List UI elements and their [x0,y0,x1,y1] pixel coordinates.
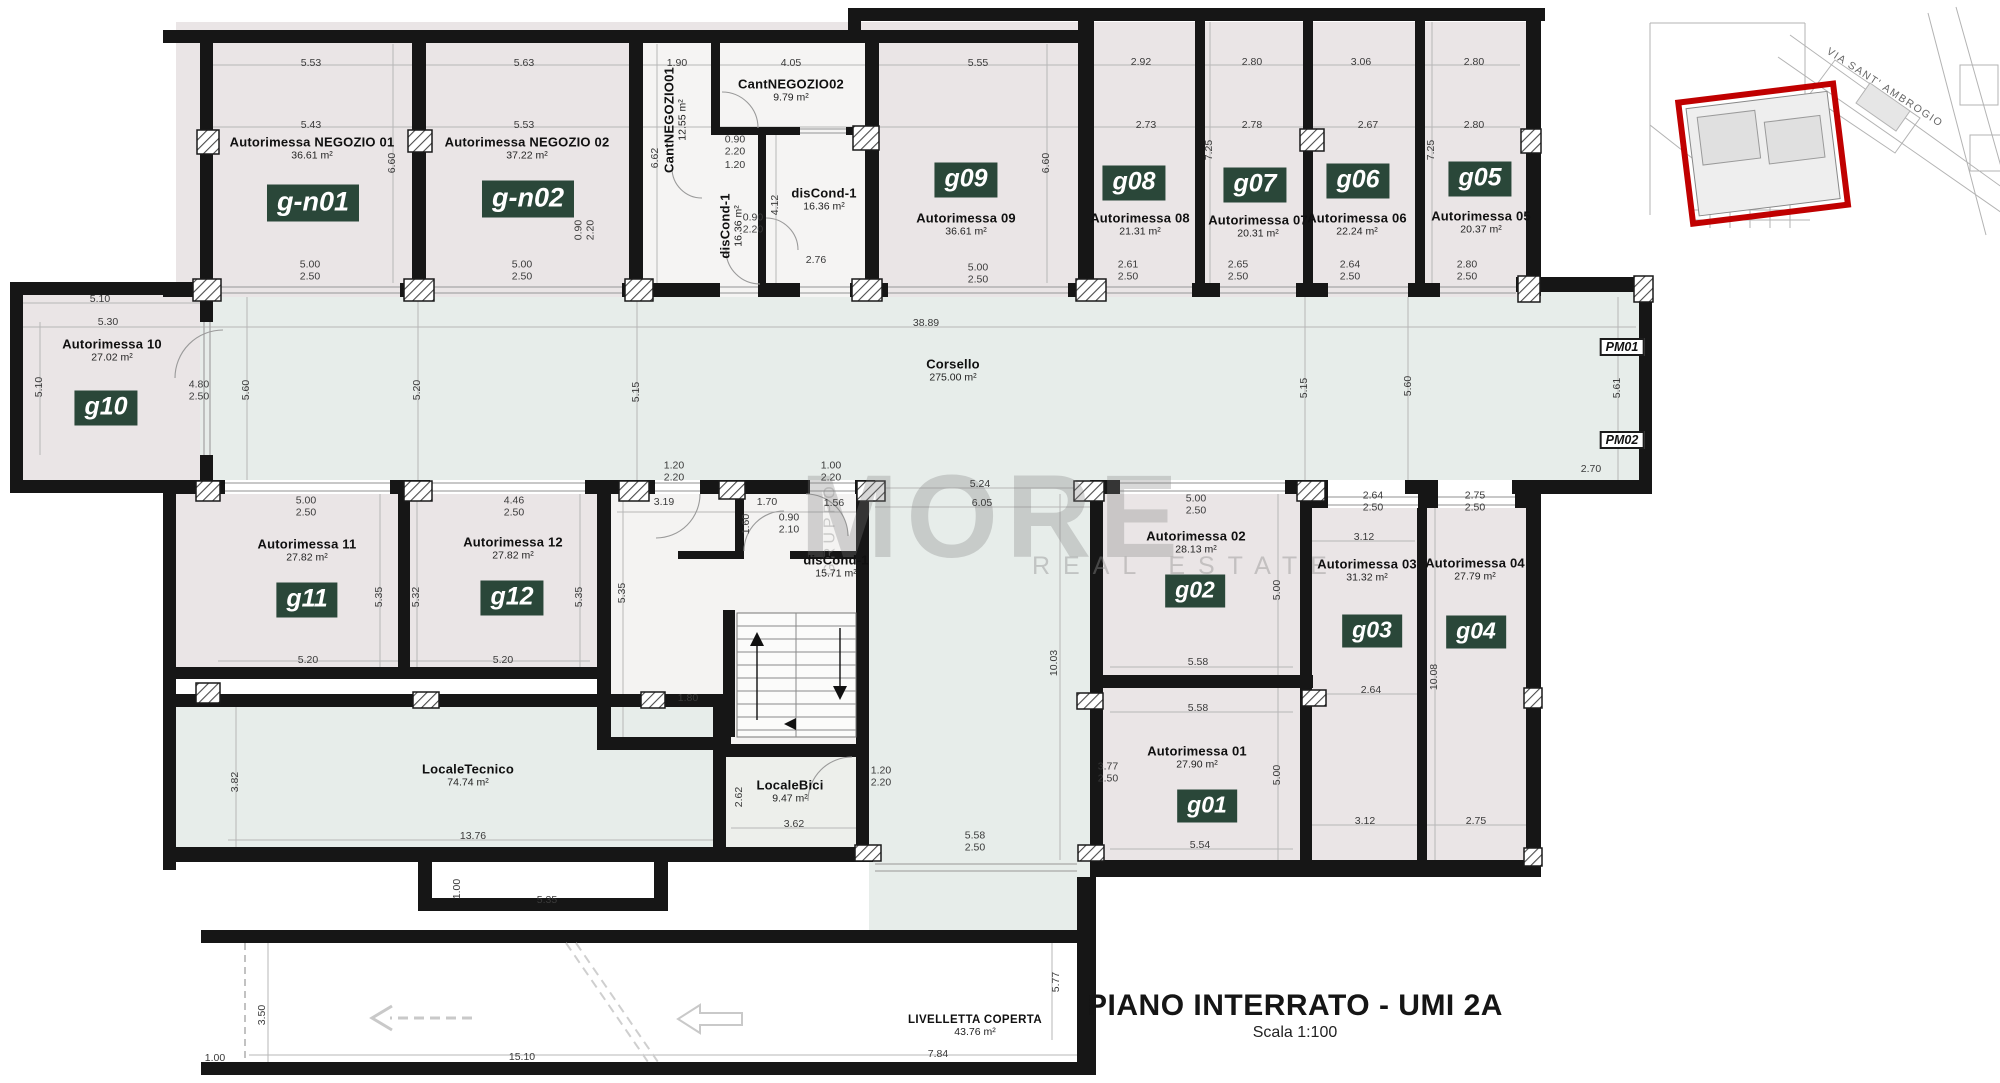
dimension-label: 5.77 [1051,972,1063,992]
dimension-label: 2.78 [1242,120,1262,132]
room-name: Autorimessa 03 [1317,557,1417,572]
room-label: Autorimessa 0622.24 m² [1307,211,1407,238]
unit-badge: g04 [1446,616,1506,649]
room-area: 12.55 m² [677,67,689,173]
room-label: LocaleTecnico74.74 m² [422,762,514,789]
dimension-label: 5.43 [301,120,321,132]
dimension-label: 1.20 2.20 [871,765,891,789]
room-name: LocaleBici [756,778,823,793]
room-area: 27.82 m² [258,552,357,564]
dimension-label: 0.90 2.10 [779,512,799,536]
room-label: Autorimessa 0427.79 m² [1425,556,1525,583]
room-label: disCond-115.71 m² [803,553,868,580]
room-area: 27.82 m² [463,550,563,562]
dimension-label: 5.00 [1272,580,1284,600]
unit-badge: g07 [1223,168,1286,203]
room-area: 74.74 m² [422,777,514,789]
unit-badge: g11 [276,583,337,618]
dimension-label: 2.92 [1131,57,1151,69]
dimension-label: 1.60 [741,514,753,534]
dimension-label: 5.53 [301,58,321,70]
dimension-label: 5.00 [1272,765,1284,785]
dimension-label: 5.32 [411,587,423,607]
dimension-label: 6.62 [650,148,662,168]
room-name: disCond-1 [718,193,733,258]
room-name: LocaleTecnico [422,762,514,777]
dimension-label: 5.24 [970,479,990,491]
dimension-label: 2.70 [1581,464,1601,476]
room-label: Autorimessa NEGOZIO 0136.61 m² [230,135,395,162]
dimension-label: 5.30 [98,317,118,329]
room-label: Autorimessa NEGOZIO 0237.22 m² [445,135,610,162]
room-label: disCond-116.36 m² [718,193,745,258]
dimension-label: 5.35 [617,583,629,603]
dimension-label: 1.70 [757,497,777,509]
unit-badge: g02 [1165,575,1225,608]
room-name: Autorimessa 10 [62,337,162,352]
room-area: 27.79 m² [1425,571,1525,583]
dimension-label: 2.75 [1466,816,1486,828]
dimension-label: 1.80 [678,693,698,705]
room-name: Autorimessa 05 [1431,209,1531,224]
dimension-label: 6.05 [972,498,992,510]
unit-badge: g10 [74,391,137,426]
room-label: Autorimessa 0331.32 m² [1317,557,1417,584]
dimension-label: 5.00 2.50 [300,259,320,283]
dimension-label: 3.12 [1355,816,1375,828]
dimension-label: 5.61 [1612,378,1624,398]
unit-badge: g-n01 [267,185,359,222]
dimension-label: 4.05 [781,58,801,70]
dimension-label: 5.60 [241,380,253,400]
dimension-label: 2.76 [806,255,826,267]
dimension-label: 0.90 2.20 [743,212,763,236]
room-name: Corsello [926,357,980,372]
room-area: 31.32 m² [1317,572,1417,584]
dimension-label: 2.80 [1464,120,1484,132]
dimension-label: 5.20 [298,655,318,667]
dimension-label: 5.35 [537,895,557,907]
dimension-label: 0.90 2.20 [725,134,745,158]
dimension-label: 2.80 [1464,57,1484,69]
dimension-label: 3.12 [1354,532,1374,544]
room-area: 16.36 m² [791,201,856,213]
room-label: Autorimessa 0720.31 m² [1208,213,1308,240]
dimension-label: 4.46 2.50 [504,495,524,519]
dimension-label: 6.60 [1041,153,1053,173]
dimension-label: 3.50 [257,1005,269,1025]
room-area: 37.22 m² [445,150,610,162]
dimension-label: 2.65 2.50 [1228,259,1248,283]
unit-badge: g08 [1102,166,1165,201]
dimension-label: 2.64 2.50 [1340,259,1360,283]
plan-scale: Scala 1:100 [1253,1024,1338,1042]
dimension-label: 3.06 [1351,57,1371,69]
room-name: Autorimessa 09 [916,211,1016,226]
dimension-label: 7.25 [1204,140,1216,160]
dimension-label: 2.67 [1358,120,1378,132]
dimension-label: 5.35 [574,587,586,607]
dimension-label: 1.00 [205,1053,225,1065]
room-name: disCond-1 [803,553,868,568]
room-label: LocaleBici9.47 m² [756,778,823,805]
dimension-label: 5.00 2.50 [1186,493,1206,517]
dimension-label: 5.53 [514,120,534,132]
dimension-label: 0.90 2.20 [573,220,597,240]
room-area: 27.02 m² [62,352,162,364]
dimension-label: 5.15 [1299,378,1311,398]
dimension-label: 10.08 [1429,664,1441,690]
dimension-label: 5.15 [631,382,643,402]
room-label: disCond-116.36 m² [791,186,856,213]
room-label: Autorimessa 1127.82 m² [258,537,357,564]
room-name: Autorimessa 07 [1208,213,1308,228]
dimension-label: 5.58 [1188,703,1208,715]
dimension-label: 7.25 [1426,140,1438,160]
dimension-label: 1.00 2.20 [821,460,841,484]
plan-title: PIANO INTERRATO - UMI 2A [1087,989,1503,1023]
room-label: CantNEGOZIO029.79 m² [738,77,844,104]
room-area: 28.13 m² [1146,544,1246,556]
unit-badge: g06 [1326,164,1389,199]
dimension-label: 5.63 [514,58,534,70]
dimension-label: 5.58 2.50 [965,830,985,854]
unit-badge: g09 [934,163,997,198]
dimension-label: 2.73 [1136,120,1156,132]
dimension-label: 7.84 [928,1049,948,1061]
dimension-label: 3.82 [230,772,242,792]
unit-badge: g01 [1177,790,1237,823]
dimension-label: 5.55 [968,58,988,70]
dimension-label: 2.64 2.50 [1363,490,1383,514]
dimension-label: 5.10 [90,294,110,306]
room-area: 16.36 m² [733,193,745,258]
room-area: 36.61 m² [916,226,1016,238]
room-label: Autorimessa 0127.90 m² [1147,744,1247,771]
room-label: Autorimessa 0821.31 m² [1090,211,1190,238]
room-label: Autorimessa 0228.13 m² [1146,529,1246,556]
floor-plan-canvas: VIA SANT' AMBROGIO MORE REAL ESTATE GRUP… [0,0,2000,1083]
dimension-label: 15.10 [509,1052,535,1064]
dimension-label: 5.60 [1403,376,1415,396]
room-name: Autorimessa 08 [1090,211,1190,226]
dimension-label: 10.03 [1049,650,1061,676]
room-area: 9.47 m² [756,793,823,805]
dimension-label: 3.77 2.50 [1098,761,1118,785]
parking-spot-label: PM02 [1600,431,1645,449]
room-area: 20.31 m² [1208,228,1308,240]
dimension-label: 5.20 [493,655,513,667]
room-label: Corsello275.00 m² [926,357,980,384]
room-name: CantNEGOZIO01 [662,67,677,173]
dimension-label: 2.80 2.50 [1457,259,1477,283]
room-name: Autorimessa 12 [463,535,563,550]
room-area: 20.37 m² [1431,224,1531,236]
room-name: Autorimessa 04 [1425,556,1525,571]
room-label: Autorimessa 1227.82 m² [463,535,563,562]
room-area: 36.61 m² [230,150,395,162]
room-name: Autorimessa NEGOZIO 02 [445,135,610,150]
dimension-label: 5.35 [374,587,386,607]
room-name: disCond-1 [791,186,856,201]
dimension-label: 2.64 [1361,685,1381,697]
room-name: Autorimessa 06 [1307,211,1407,226]
room-area: 9.79 m² [738,92,844,104]
room-label: Autorimessa 0520.37 m² [1431,209,1531,236]
unit-badge: g-n02 [482,181,574,218]
dimension-label: 13.76 [460,831,486,843]
dimension-label: 3.62 [784,819,804,831]
room-name: LIVELLETTA COPERTA [908,1014,1042,1026]
room-area: 22.24 m² [1307,226,1407,238]
dimension-label: 5.54 [1190,840,1210,852]
dimension-label: 4.80 2.50 [189,379,209,403]
room-name: Autorimessa NEGOZIO 01 [230,135,395,150]
room-label: LIVELLETTA COPERTA43.76 m² [908,1014,1042,1038]
dimension-label: 1.20 [725,160,745,172]
dimension-label: 2.80 [1242,57,1262,69]
dimension-label: 5.00 2.50 [968,262,988,286]
room-area: 27.90 m² [1147,759,1247,771]
room-label: Autorimessa 0936.61 m² [916,211,1016,238]
dimension-label: 2.62 [734,787,746,807]
room-area: 15.71 m² [803,568,868,580]
room-area: 21.31 m² [1090,226,1190,238]
room-name: Autorimessa 11 [258,537,357,552]
unit-badge: g05 [1448,162,1511,197]
room-name: CantNEGOZIO02 [738,77,844,92]
labels-layer: MORE REAL ESTATE GRUPPO PIANO INTERRATO … [0,0,2000,1083]
dimension-label: 38.89 [913,318,939,330]
dimension-label: 3.19 [654,497,674,509]
dimension-label: 5.20 [412,380,424,400]
room-label: Autorimessa 1027.02 m² [62,337,162,364]
dimension-label: 5.00 2.50 [512,259,532,283]
room-name: Autorimessa 01 [1147,744,1247,759]
dimension-label: 1.20 2.20 [664,460,684,484]
dimension-label: 1.56 [824,498,844,510]
room-area: 43.76 m² [908,1026,1042,1038]
dimension-label: 5.00 2.50 [296,495,316,519]
dimension-label: 2.75 2.50 [1465,490,1485,514]
room-area: 275.00 m² [926,372,980,384]
parking-spot-label: PM01 [1600,338,1645,356]
dimension-label: 2.61 2.50 [1118,259,1138,283]
dimension-label: 5.58 [1188,657,1208,669]
room-label: CantNEGOZIO0112.55 m² [662,67,689,173]
dimension-label: 1.00 [452,879,464,899]
unit-badge: g12 [480,581,543,616]
dimension-label: 5.10 [34,377,46,397]
dimension-label: 4.12 [770,195,782,215]
unit-badge: g03 [1342,615,1402,648]
room-name: Autorimessa 02 [1146,529,1246,544]
